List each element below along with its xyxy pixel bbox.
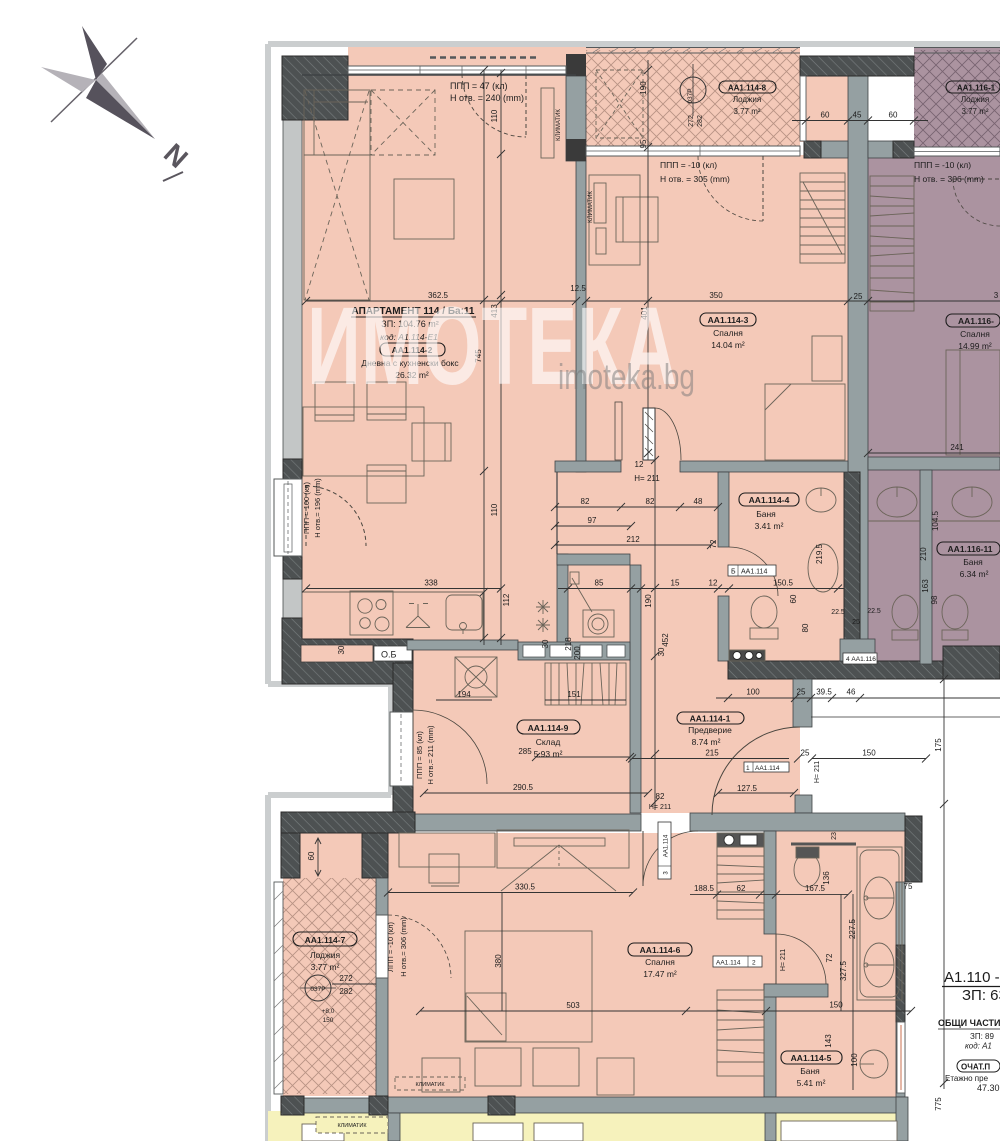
svg-text:100: 100 <box>746 688 760 697</box>
svg-text:код: А1: код: А1 <box>965 1042 992 1051</box>
svg-text:30: 30 <box>657 647 666 656</box>
svg-text:Н= 211: Н= 211 <box>814 761 821 783</box>
svg-text:Спалня: Спалня <box>960 329 990 339</box>
svg-text:45: 45 <box>853 111 862 120</box>
svg-text:2: 2 <box>752 960 756 967</box>
svg-text:62: 62 <box>737 884 746 893</box>
svg-text:60: 60 <box>889 111 898 120</box>
svg-text:Баня: Баня <box>963 557 983 567</box>
svg-text:282: 282 <box>697 115 704 127</box>
svg-text:452: 452 <box>661 633 670 647</box>
svg-text:ППП = -10 (кл): ППП = -10 (кл) <box>914 160 971 170</box>
svg-text:АА1.114: АА1.114 <box>741 569 767 576</box>
svg-text:3.41 m²: 3.41 m² <box>755 521 784 531</box>
svg-text:30: 30 <box>337 645 346 654</box>
svg-text:218: 218 <box>564 637 573 651</box>
svg-text:6.34 m²: 6.34 m² <box>960 569 989 579</box>
svg-text:350: 350 <box>709 291 723 300</box>
svg-text:imoteka.bg: imoteka.bg <box>558 356 695 397</box>
svg-text:82: 82 <box>581 497 590 506</box>
svg-text:95: 95 <box>639 139 648 148</box>
svg-text:150: 150 <box>862 749 876 758</box>
svg-text:12: 12 <box>635 460 644 469</box>
svg-text:037Р: 037Р <box>687 88 694 103</box>
svg-text:82: 82 <box>646 497 655 506</box>
svg-text:25: 25 <box>797 688 806 697</box>
svg-text:АА1.114-3: АА1.114-3 <box>708 315 749 325</box>
svg-text:Н= 211: Н= 211 <box>780 949 787 971</box>
svg-text:85: 85 <box>595 579 604 588</box>
svg-text:ЛПП = -10 (кл): ЛПП = -10 (кл) <box>386 922 395 972</box>
svg-text:3.77 m²: 3.77 m² <box>733 107 760 116</box>
svg-text:12: 12 <box>709 579 718 588</box>
svg-text:775: 775 <box>934 1097 943 1111</box>
svg-text:037Р: 037Р <box>310 986 325 993</box>
svg-text:15: 15 <box>671 579 680 588</box>
svg-text:290.5: 290.5 <box>513 783 534 792</box>
svg-text:219.5: 219.5 <box>815 543 824 564</box>
svg-text:Спалня: Спалня <box>713 328 743 338</box>
svg-text:3.77 m²: 3.77 m² <box>311 962 340 972</box>
svg-text:ППП = 47 (кл): ППП = 47 (кл) <box>450 81 507 91</box>
svg-text:60: 60 <box>789 594 798 603</box>
svg-text:АА1.114-8: АА1.114-8 <box>728 84 767 93</box>
svg-text:72: 72 <box>709 539 718 548</box>
svg-text:Н= 211: Н= 211 <box>649 804 671 811</box>
svg-text:151: 151 <box>567 690 581 699</box>
svg-text:Н= 211: Н= 211 <box>634 474 660 483</box>
svg-text:150: 150 <box>829 1001 843 1010</box>
svg-text:Склад: Склад <box>536 737 561 747</box>
svg-text:98: 98 <box>930 595 939 604</box>
svg-text:215: 215 <box>705 749 719 758</box>
svg-text:17.47 m²: 17.47 m² <box>643 969 677 979</box>
svg-text:14.99 m²: 14.99 m² <box>958 341 992 351</box>
svg-text:КЛИМАТИК: КЛИМАТИК <box>556 109 562 141</box>
svg-text:Лоджия: Лоджия <box>310 950 341 960</box>
svg-text:194: 194 <box>457 690 471 699</box>
svg-text:30: 30 <box>541 639 550 648</box>
svg-text:ОБЩИ ЧАСТИ: ОБЩИ ЧАСТИ <box>938 1018 1000 1028</box>
svg-text:А1.110 -: А1.110 - <box>944 969 1000 986</box>
svg-text:Лоджия: Лоджия <box>733 95 761 104</box>
svg-text:3: 3 <box>994 291 999 300</box>
svg-text:АА1.116-1: АА1.116-1 <box>957 84 996 93</box>
svg-text:150: 150 <box>323 1017 334 1024</box>
svg-text:Н отв. = 305 (mm): Н отв. = 305 (mm) <box>660 174 730 184</box>
svg-text:АА1.114-9: АА1.114-9 <box>528 723 569 733</box>
svg-text:285: 285 <box>518 747 532 756</box>
svg-text:48: 48 <box>694 497 703 506</box>
svg-text:Баня: Баня <box>756 509 776 519</box>
svg-text:14.04 m²: 14.04 m² <box>711 340 745 350</box>
svg-text:212: 212 <box>626 535 640 544</box>
svg-text:190: 190 <box>644 594 653 608</box>
svg-text:175: 175 <box>934 738 943 752</box>
svg-text:АА1.114: АА1.114 <box>664 834 670 857</box>
svg-text:282: 282 <box>339 987 353 996</box>
svg-text:Н отв.= 306 (mm): Н отв.= 306 (mm) <box>399 917 408 977</box>
svg-text:272: 272 <box>339 974 353 983</box>
svg-text:О.Б: О.Б <box>381 650 397 660</box>
svg-text:272: 272 <box>688 115 695 127</box>
svg-text:Спалня: Спалня <box>645 957 675 967</box>
svg-text:ППП = 85 (кл): ППП = 85 (кл) <box>415 731 424 779</box>
svg-text:47.30: 47.30 <box>977 1083 1000 1093</box>
svg-text:5.41 m²: 5.41 m² <box>797 1078 826 1088</box>
svg-text:100: 100 <box>850 1053 859 1067</box>
svg-text:104.5: 104.5 <box>931 510 940 531</box>
svg-text:3.77 m²: 3.77 m² <box>961 107 988 116</box>
svg-text:АА1.114: АА1.114 <box>755 765 780 772</box>
svg-text:Лоджия: Лоджия <box>961 95 989 104</box>
svg-text:190: 190 <box>639 81 648 95</box>
svg-text:60: 60 <box>307 851 316 860</box>
svg-text:АА1.114-4: АА1.114-4 <box>749 495 790 505</box>
svg-text:80: 80 <box>801 623 810 632</box>
svg-text:ЗП: 89: ЗП: 89 <box>970 1032 994 1041</box>
svg-text:46: 46 <box>847 688 856 697</box>
svg-text:КЛИМАТИК: КЛИМАТИК <box>415 1082 445 1088</box>
svg-text:188.5: 188.5 <box>694 884 715 893</box>
svg-text:Н отв.= 211 (mm): Н отв.= 211 (mm) <box>426 725 435 785</box>
svg-text:227.5: 227.5 <box>848 918 857 939</box>
svg-text:8.74 m²: 8.74 m² <box>692 737 721 747</box>
svg-text:143: 143 <box>824 1034 833 1048</box>
svg-text:АА1.116-11: АА1.116-11 <box>948 544 993 554</box>
svg-text:АА1.114-7: АА1.114-7 <box>305 935 346 945</box>
svg-text:АА1.114-1: АА1.114-1 <box>690 714 731 724</box>
svg-text:150.5: 150.5 <box>773 579 794 588</box>
svg-text:АА1.114: АА1.114 <box>716 960 741 967</box>
svg-text:25: 25 <box>854 292 863 301</box>
svg-text:22.5: 22.5 <box>867 608 881 615</box>
svg-text:КЛИМАТИК: КЛИМАТИК <box>588 191 594 223</box>
svg-text:ППП = -10 (кл): ППП = -10 (кл) <box>660 160 717 170</box>
svg-text:75: 75 <box>904 882 913 891</box>
svg-text:327.5: 327.5 <box>839 960 848 981</box>
svg-text:163: 163 <box>921 579 930 593</box>
svg-text:60: 60 <box>821 111 830 120</box>
svg-text:82: 82 <box>656 792 665 801</box>
svg-text:210: 210 <box>919 547 928 561</box>
svg-text:338: 338 <box>424 579 438 588</box>
svg-text:5.93 m²: 5.93 m² <box>534 749 563 759</box>
svg-text:Етажно пре: Етажно пре <box>945 1074 989 1083</box>
svg-text:Н отв.= 196 (mm): Н отв.= 196 (mm) <box>313 478 322 538</box>
svg-text:25: 25 <box>852 619 860 626</box>
svg-text:КЛИМАТИК: КЛИМАТИК <box>337 1123 367 1129</box>
svg-text:Б: Б <box>731 569 736 576</box>
svg-text:22.5: 22.5 <box>831 609 845 616</box>
svg-text:110: 110 <box>490 109 499 122</box>
svg-text:АА1.114-6: АА1.114-6 <box>640 945 681 955</box>
svg-text:Баня: Баня <box>800 1066 820 1076</box>
svg-text:Предверие: Предверие <box>688 725 732 735</box>
svg-text:330.5: 330.5 <box>515 883 536 892</box>
svg-text:110: 110 <box>490 503 499 516</box>
svg-text:503: 503 <box>566 1001 580 1010</box>
svg-text:+8,0: +8,0 <box>322 1008 335 1015</box>
svg-text:97: 97 <box>588 516 597 525</box>
svg-text:200: 200 <box>573 646 582 660</box>
svg-text:ППП = 100 (кл): ППП = 100 (кл) <box>302 481 311 534</box>
svg-text:1: 1 <box>746 765 750 772</box>
svg-text:127.5: 127.5 <box>737 784 758 793</box>
svg-text:112: 112 <box>502 593 511 606</box>
svg-text:4 АА1.116: 4 АА1.116 <box>846 656 876 663</box>
svg-text:241: 241 <box>950 443 964 452</box>
svg-text:380: 380 <box>494 954 503 968</box>
svg-text:Н отв. = 306 (mm): Н отв. = 306 (mm) <box>914 174 984 184</box>
svg-text:23: 23 <box>831 832 838 840</box>
svg-text:АА1.116-: АА1.116- <box>958 316 994 326</box>
svg-text:72: 72 <box>825 953 834 962</box>
svg-text:25: 25 <box>801 749 810 758</box>
svg-text:39.5: 39.5 <box>816 688 832 697</box>
svg-text:ОЧАТ.П: ОЧАТ.П <box>961 1063 990 1072</box>
svg-text:АА1.114-5: АА1.114-5 <box>791 1053 832 1063</box>
svg-text:ЗП: 63: ЗП: 63 <box>962 987 1000 1004</box>
svg-text:136: 136 <box>822 871 831 885</box>
svg-text:Н отв. = 240 (mm): Н отв. = 240 (mm) <box>450 93 524 103</box>
